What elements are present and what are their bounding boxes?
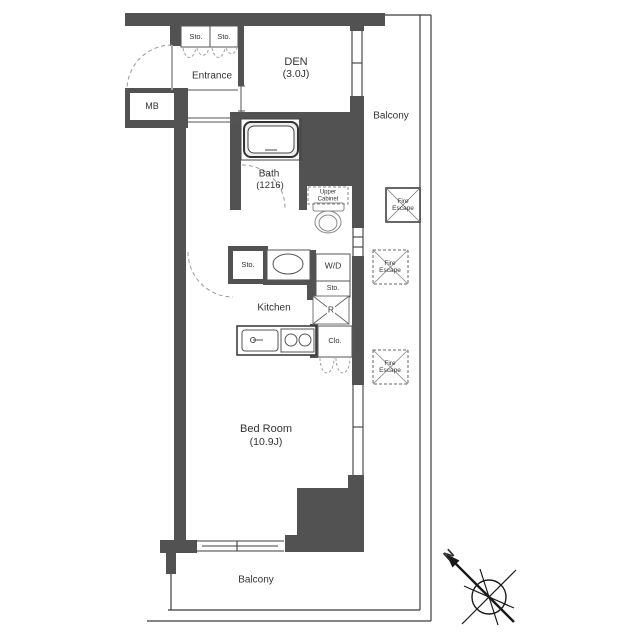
- entrance-storage: [181, 26, 238, 57]
- bedroom-label: Bed Room: [240, 423, 292, 435]
- closet-label: Clo.: [328, 337, 341, 345]
- meter-box-label: MB: [145, 102, 159, 112]
- bath-label: Bath: [259, 169, 280, 180]
- kitchen-fixtures: [237, 326, 316, 355]
- side-balcony-label: Balcony: [373, 111, 409, 122]
- upper-cabinet-label: Upper Cabinet: [310, 189, 346, 202]
- compass-rose-icon: [446, 554, 516, 625]
- floor-plan: Sto. Sto. Entrance DEN (3.0J) MB Balcony…: [0, 0, 640, 640]
- sto-entrance-left-label: Sto.: [189, 33, 202, 41]
- bedroom-size-label: (10.9J): [250, 437, 283, 449]
- den-size-label: (3.0J): [283, 69, 310, 81]
- den-label: DEN: [284, 56, 307, 68]
- washbasin-icon: [267, 250, 310, 280]
- entrance-label: Entrance: [192, 71, 232, 82]
- wd-sto-label: Sto.: [327, 285, 339, 293]
- fire-escape-middle-label: Fire Escape: [376, 260, 404, 274]
- refrigerator-label: R: [327, 305, 335, 314]
- bottom-balcony-label: Balcony: [238, 575, 274, 586]
- bathtub-icon: [241, 119, 301, 160]
- sto-entrance-right-label: Sto.: [217, 33, 230, 41]
- fire-escape-boxes: [373, 188, 420, 384]
- washer-dryer-label: W/D: [325, 261, 342, 270]
- closet-box: [318, 326, 352, 373]
- balcony-outline: [147, 15, 431, 621]
- floor-plan-drawing: [0, 0, 640, 640]
- fire-escape-bottom-label: Fire Escape: [376, 360, 404, 374]
- sto-hall-label: Sto.: [241, 261, 254, 269]
- kitchen-label: Kitchen: [257, 303, 290, 314]
- bath-size-label: (1216): [256, 181, 283, 191]
- fire-escape-top-label: Fire Escape: [389, 198, 417, 212]
